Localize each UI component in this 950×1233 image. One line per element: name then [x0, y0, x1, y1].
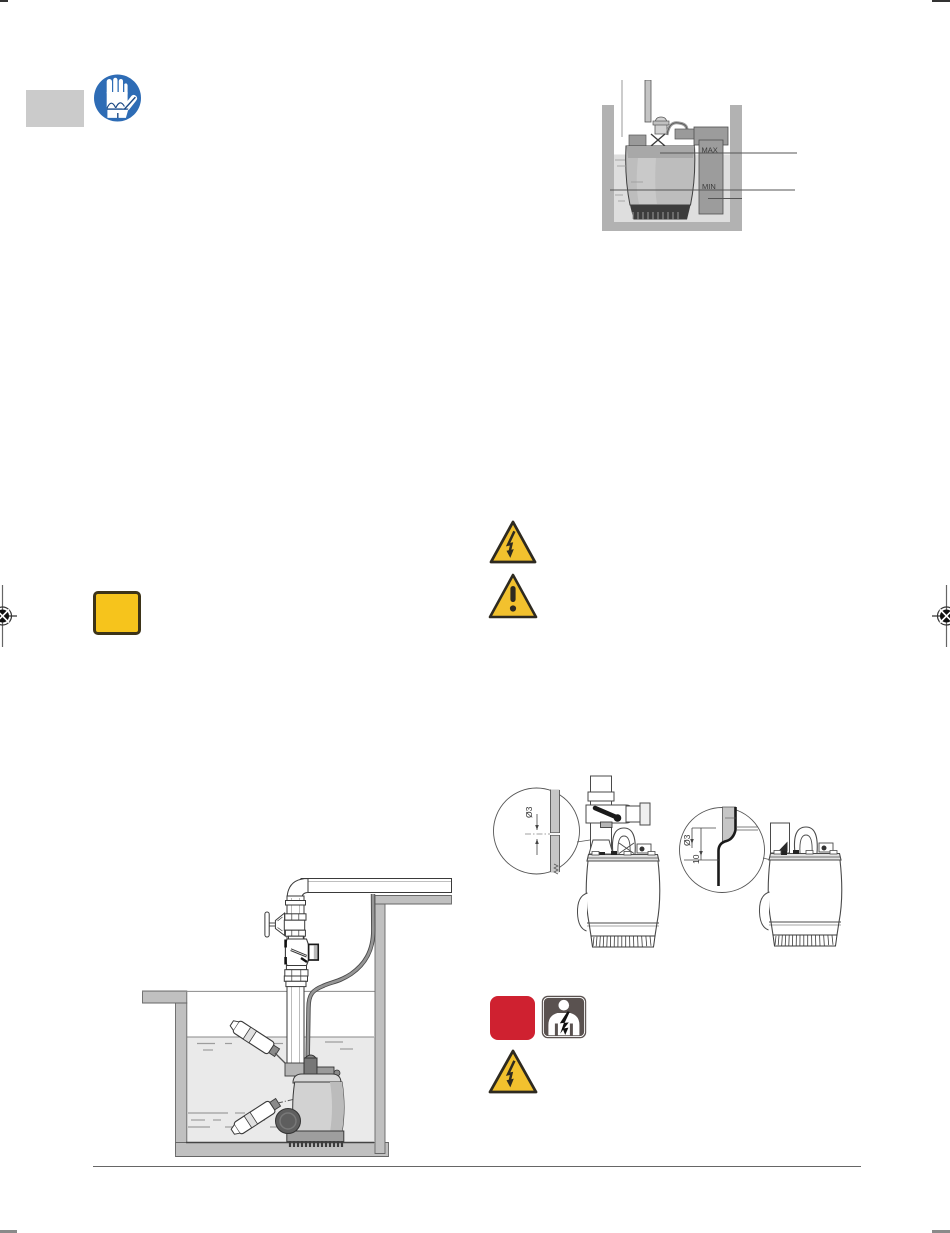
svg-text:Ø3: Ø3: [524, 806, 534, 818]
svg-text:Ø3: Ø3: [682, 834, 692, 846]
svg-text:10: 10: [691, 854, 701, 864]
